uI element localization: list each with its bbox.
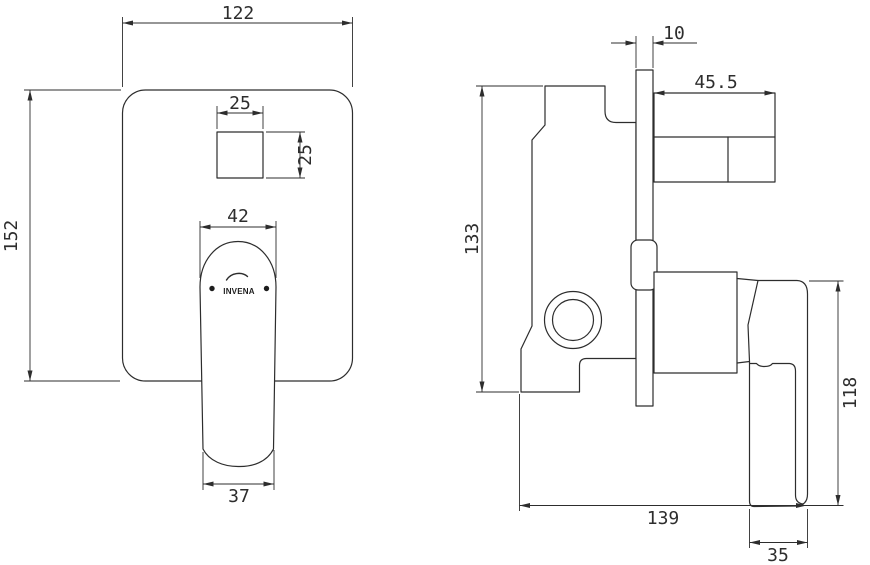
dim-spout-depth-label: 45.5 (694, 72, 737, 93)
dim-plate-width-label: 122 (222, 3, 255, 24)
dim-plate-thickness: 10 (611, 23, 697, 68)
dim-button-height-label: 25 (295, 144, 316, 166)
spout-block (654, 93, 775, 182)
technical-drawing-canvas: INVENA 122 152 25 25 (0, 0, 870, 565)
dim-plate-width: 122 (123, 3, 353, 87)
handle-screw-dot-left (209, 286, 214, 291)
mixer-drawing-svg: INVENA 122 152 25 25 (0, 0, 870, 565)
inlet-port-inner-circle (553, 300, 594, 341)
dim-handle-bottom-width-label: 37 (228, 486, 250, 507)
dim-total-depth-label: 139 (647, 508, 680, 529)
front-view: INVENA 122 152 25 25 (1, 3, 353, 507)
handle-top-connector-line (737, 279, 758, 281)
brand-logo-text: INVENA (223, 287, 254, 296)
dim-plate-height-label: 152 (1, 220, 22, 253)
dim-lever-length-label: 118 (840, 377, 861, 410)
handle-bottom-connector-line (737, 362, 750, 364)
diverter-button-outline (217, 132, 263, 178)
dim-handle-top-width-label: 42 (227, 206, 249, 227)
handle-screw-dot-right (264, 286, 269, 291)
dim-lever-width: 35 (750, 509, 808, 565)
dim-button-width-label: 25 (229, 93, 251, 114)
dim-body-height-label: 133 (462, 223, 483, 256)
cartridge-housing-outline (654, 272, 737, 373)
dim-plate-height: 152 (1, 90, 121, 381)
dim-lever-length: 118 (809, 281, 861, 506)
dim-lever-width-label: 35 (767, 545, 789, 565)
front-handle-outline (200, 242, 276, 467)
dim-spout-depth: 45.5 (654, 72, 775, 93)
side-plate-outline (636, 70, 653, 406)
side-view: 10 45.5 133 139 118 (462, 23, 861, 565)
side-handle-outline (748, 281, 808, 507)
side-handle (737, 279, 808, 507)
stem-boss-outline (631, 240, 657, 290)
dim-plate-thickness-label: 10 (663, 23, 685, 44)
